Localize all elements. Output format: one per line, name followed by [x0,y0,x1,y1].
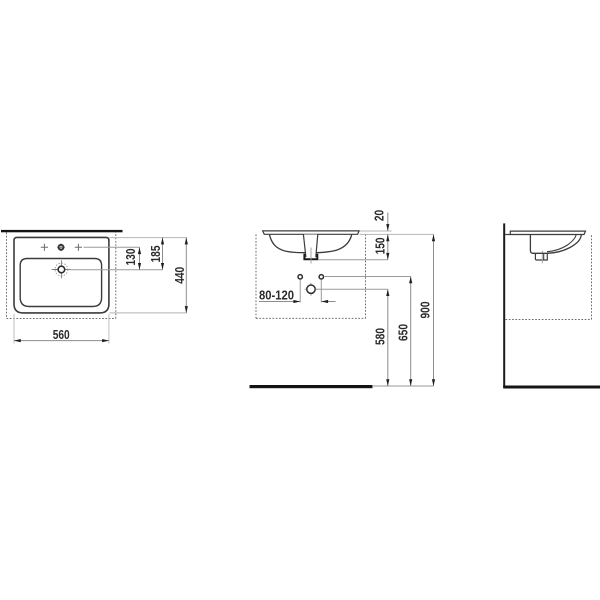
svg-text:150: 150 [372,237,387,254]
svg-text:20: 20 [372,210,387,221]
svg-text:440: 440 [172,267,187,284]
svg-text:560: 560 [53,327,70,342]
svg-text:130: 130 [123,249,138,266]
svg-text:185: 185 [148,246,163,263]
svg-text:580: 580 [373,328,388,345]
svg-text:650: 650 [396,324,411,341]
svg-text:80-120: 80-120 [259,288,294,303]
svg-text:900: 900 [418,302,433,319]
